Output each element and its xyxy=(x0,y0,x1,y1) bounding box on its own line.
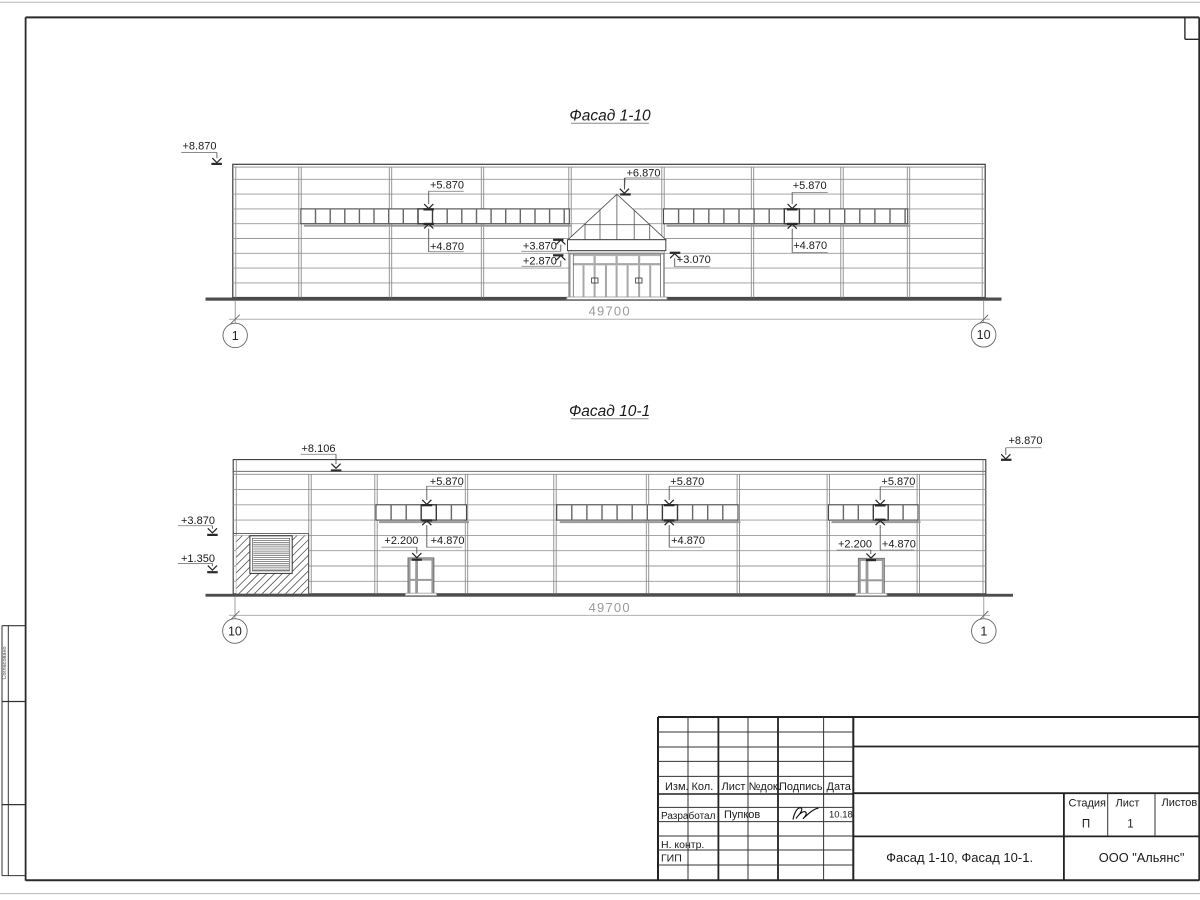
svg-text:49700: 49700 xyxy=(589,304,631,319)
svg-text:+8.870: +8.870 xyxy=(1009,435,1043,447)
svg-text:+5.870: +5.870 xyxy=(430,180,464,192)
svg-text:Разработал: Разработал xyxy=(661,810,716,822)
svg-text:Фасад 1-10, Фасад 10-1.: Фасад 1-10, Фасад 10-1. xyxy=(886,850,1033,865)
svg-text:+8.870: +8.870 xyxy=(183,141,217,153)
svg-text:+2.200: +2.200 xyxy=(838,538,872,550)
svg-text:+4.870: +4.870 xyxy=(882,538,916,550)
svg-text:1: 1 xyxy=(980,624,987,638)
svg-text:ГИП: ГИП xyxy=(661,853,682,865)
svg-text:+8.106: +8.106 xyxy=(302,443,336,455)
svg-text:+4.870: +4.870 xyxy=(431,535,465,547)
svg-text:Фасад 10-1: Фасад 10-1 xyxy=(569,403,650,420)
svg-text:1: 1 xyxy=(232,329,239,343)
svg-text:10.18: 10.18 xyxy=(829,810,853,821)
svg-text:1: 1 xyxy=(1127,819,1133,831)
svg-text:Листов: Листов xyxy=(1162,797,1198,809)
svg-text:Согласовано: Согласовано xyxy=(2,646,8,679)
svg-text:Изм.: Изм. xyxy=(665,781,689,793)
svg-text:+3.870: +3.870 xyxy=(181,515,215,527)
svg-text:Лист: Лист xyxy=(1116,797,1140,809)
svg-text:П: П xyxy=(1082,819,1090,831)
svg-text:10: 10 xyxy=(228,624,242,638)
svg-text:ООО "Альянс": ООО "Альянс" xyxy=(1099,850,1185,865)
svg-text:+5.870: +5.870 xyxy=(881,476,915,488)
svg-text:Стадия: Стадия xyxy=(1069,797,1107,809)
svg-text:+2.200: +2.200 xyxy=(384,535,418,547)
svg-text:+3.070: +3.070 xyxy=(677,254,711,266)
svg-text:+2.870: +2.870 xyxy=(523,255,557,267)
svg-text:+4.870: +4.870 xyxy=(793,240,827,252)
svg-text:+5.870: +5.870 xyxy=(793,180,827,192)
svg-text:Фасад 1-10: Фасад 1-10 xyxy=(569,108,651,125)
svg-text:Подпись: Подпись xyxy=(779,781,823,793)
svg-text:Пупков: Пупков xyxy=(724,809,760,821)
svg-text:Кол.: Кол. xyxy=(692,781,714,793)
svg-text:10: 10 xyxy=(977,328,991,342)
svg-text:№док.: №док. xyxy=(749,781,781,793)
svg-text:+4.870: +4.870 xyxy=(671,535,705,547)
svg-text:+3.870: +3.870 xyxy=(523,240,557,252)
svg-text:Н. контр.: Н. контр. xyxy=(661,839,704,851)
svg-text:Дата: Дата xyxy=(827,781,852,793)
svg-text:49700: 49700 xyxy=(589,600,631,615)
svg-text:Лист: Лист xyxy=(722,781,746,793)
